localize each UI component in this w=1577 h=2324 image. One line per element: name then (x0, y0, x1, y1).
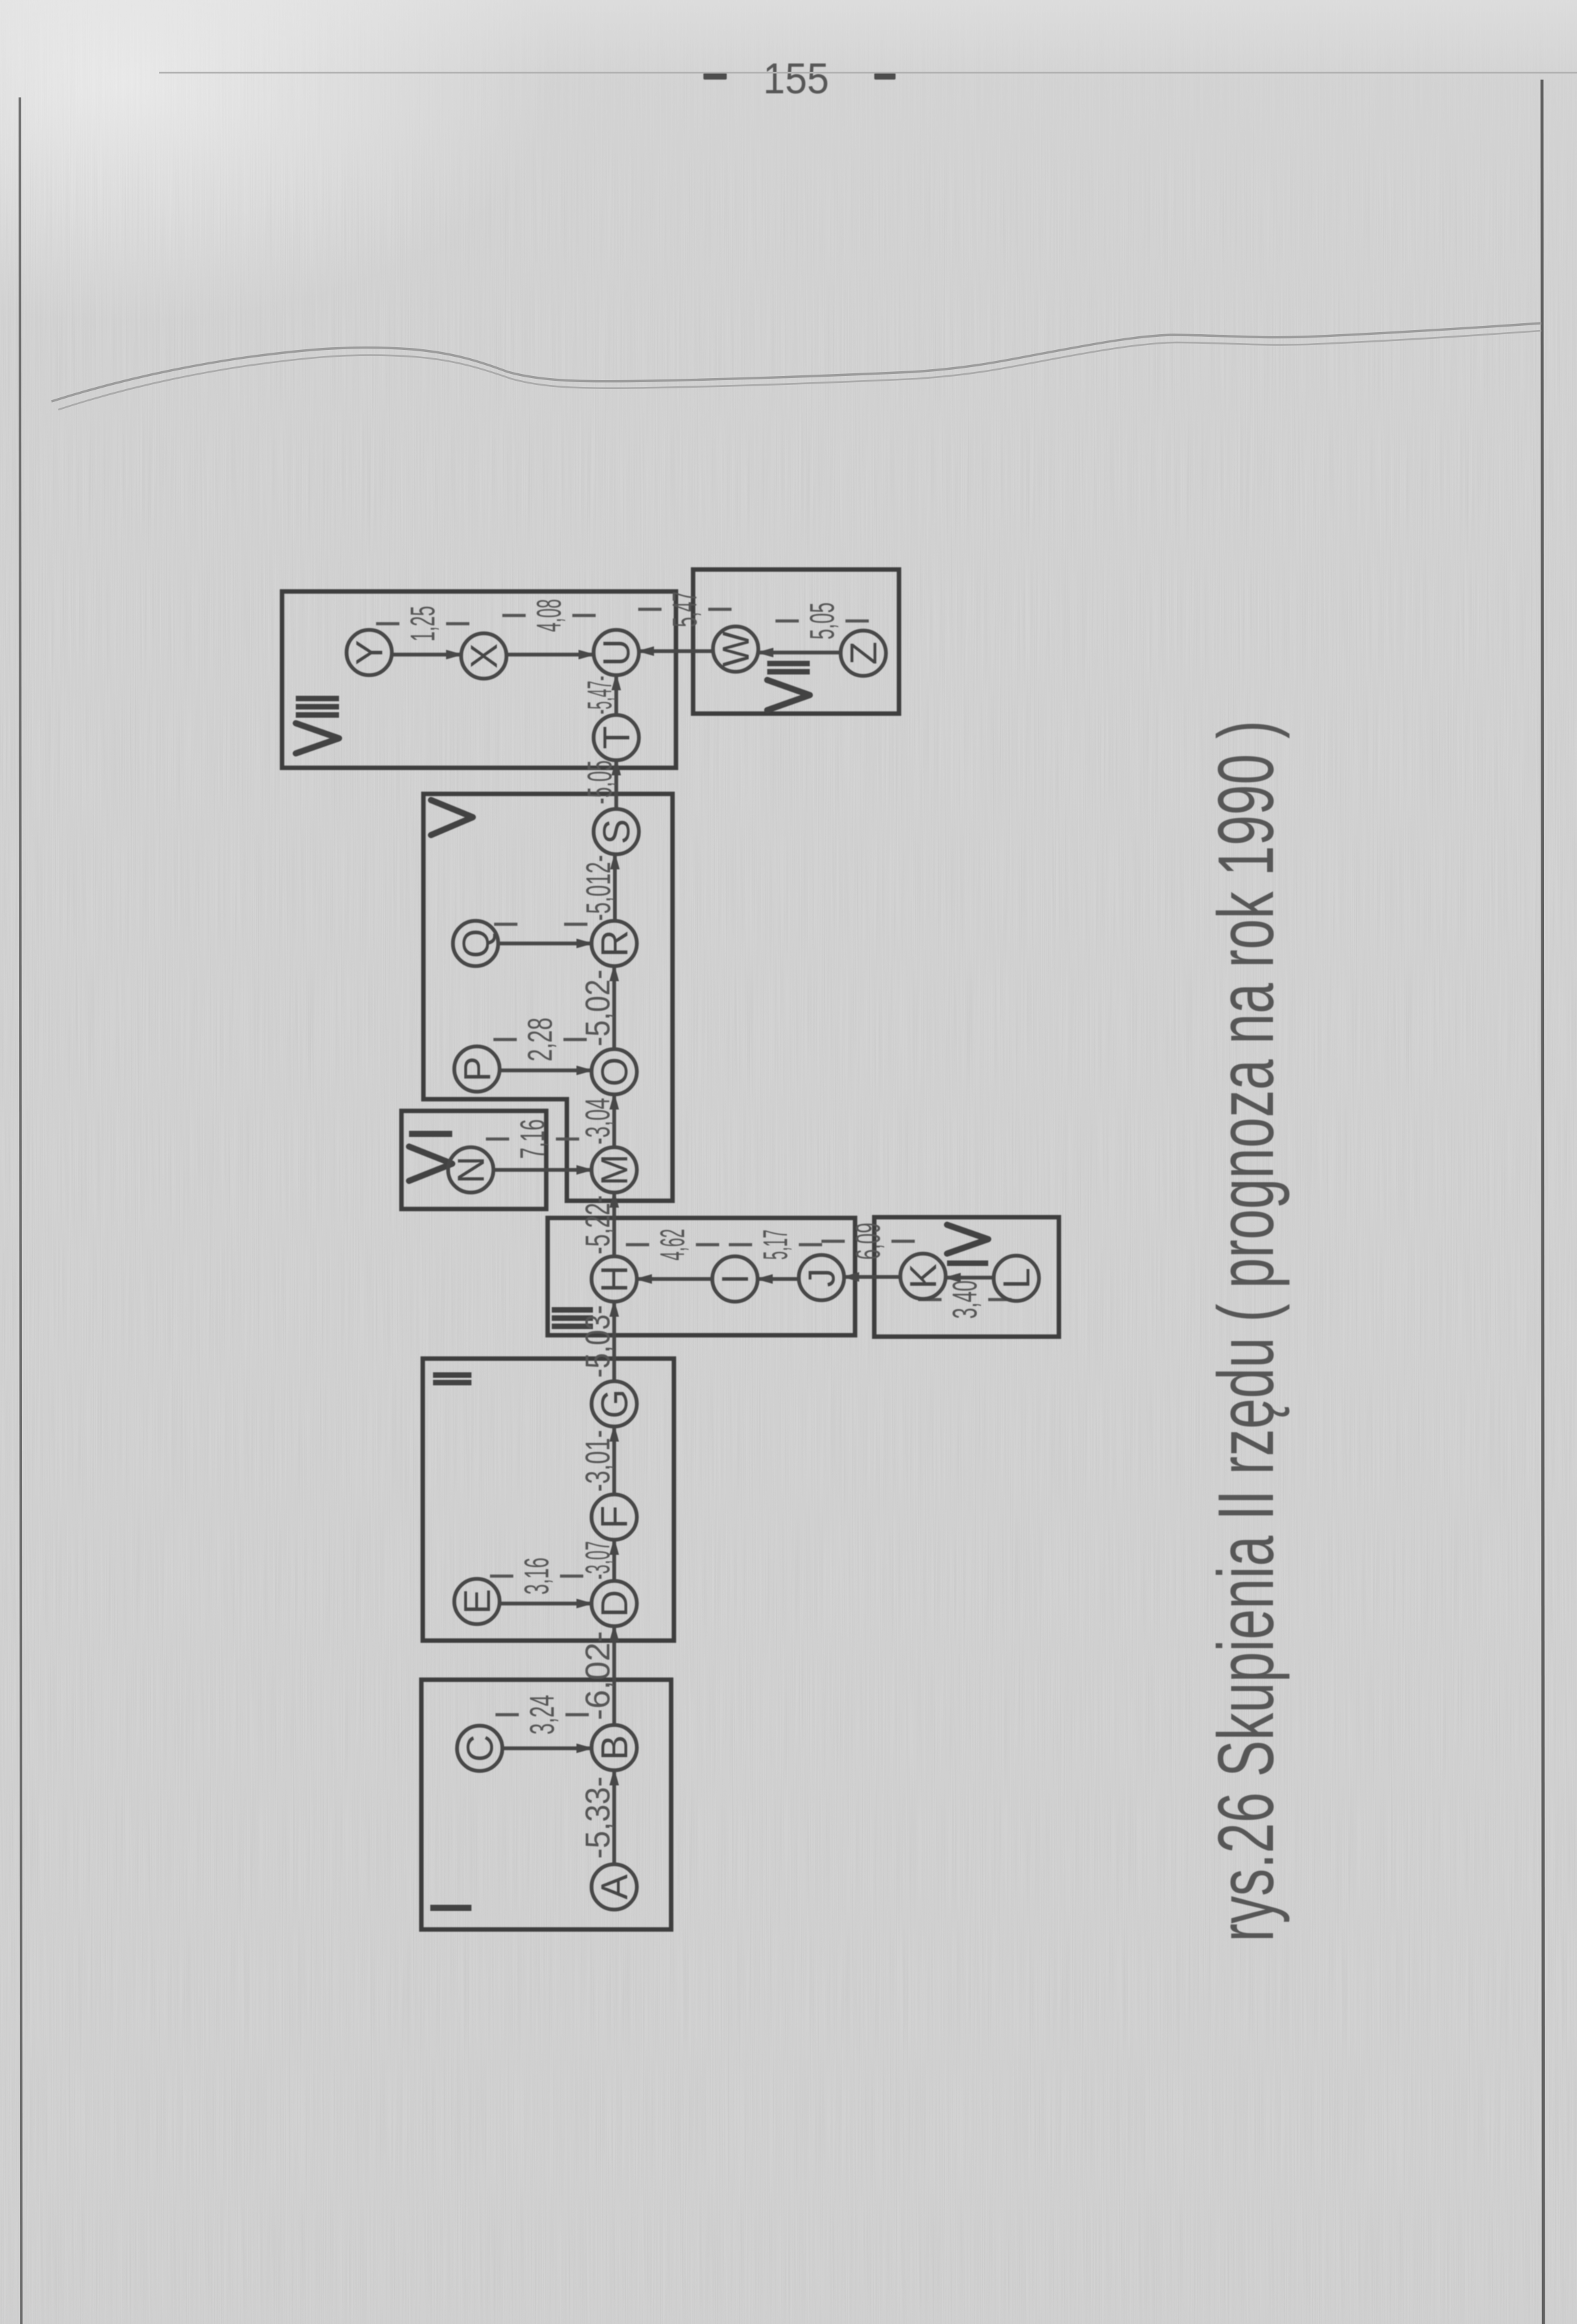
svg-text:-3,04: -3,04 (579, 1098, 617, 1145)
svg-text:4,08: 4,08 (530, 599, 568, 632)
svg-text:2,28: 2,28 (521, 1018, 559, 1061)
svg-text:M: M (593, 1154, 635, 1186)
svg-text:D: D (593, 1590, 635, 1617)
svg-text:3,16: 3,16 (517, 1558, 556, 1595)
svg-text:-5,02-: -5,02- (579, 970, 617, 1046)
svg-text:Q: Q (454, 929, 497, 959)
svg-text:-5,47-: -5,47- (581, 676, 619, 714)
svg-text:rys.26 Skupienia II rzędu ( pr: rys.26 Skupienia II rzędu ( prognoza na … (1202, 720, 1290, 1942)
svg-text:B: B (593, 1735, 635, 1761)
svg-text:-6,02-: -6,02- (579, 1631, 617, 1720)
svg-text:J: J (800, 1268, 843, 1287)
svg-text:-3,07: -3,07 (579, 1541, 617, 1580)
svg-text:U: U (595, 639, 638, 666)
svg-text:7,16: 7,16 (513, 1119, 552, 1159)
svg-text:C: C (458, 1735, 501, 1762)
svg-text:F: F (593, 1505, 635, 1529)
svg-text:1,25: 1,25 (404, 606, 442, 642)
svg-text:5,05: 5,05 (803, 602, 841, 639)
svg-text:-5,012-: -5,012- (579, 855, 618, 921)
svg-text:T: T (595, 726, 638, 749)
svg-text:-3,01-: -3,01- (579, 1430, 617, 1492)
svg-text:6,09: 6,09 (849, 1223, 887, 1260)
svg-text:H: H (593, 1265, 635, 1293)
svg-text:-5,03-: -5,03- (579, 1305, 617, 1378)
svg-text:O: O (593, 1057, 635, 1087)
svg-text:R: R (593, 930, 635, 957)
svg-text:-5,22-: -5,22- (579, 1195, 617, 1254)
svg-text:5,47: 5,47 (666, 591, 704, 627)
svg-text:Z: Z (842, 642, 885, 665)
svg-text:155: 155 (763, 55, 829, 103)
svg-text:-5,33-: -5,33- (579, 1776, 617, 1859)
svg-text:P: P (456, 1057, 498, 1082)
svg-text:K: K (902, 1263, 944, 1289)
svg-text:3,24: 3,24 (523, 1695, 561, 1735)
svg-text:Y: Y (348, 640, 390, 666)
svg-text:4,62: 4,62 (653, 1229, 692, 1260)
svg-text:N: N (449, 1156, 492, 1184)
svg-text:5,17: 5,17 (756, 1230, 795, 1260)
svg-text:S: S (595, 819, 638, 845)
svg-text:L: L (995, 1268, 1038, 1289)
svg-text:3,40: 3,40 (946, 1280, 984, 1319)
svg-text:G: G (593, 1389, 635, 1419)
svg-text:X: X (463, 644, 505, 669)
svg-text:-5,05: -5,05 (581, 760, 619, 804)
svg-text:A: A (593, 1874, 635, 1899)
svg-text:W: W (714, 631, 757, 667)
svg-text:I: I (714, 1273, 756, 1284)
svg-text:E: E (456, 1589, 498, 1615)
